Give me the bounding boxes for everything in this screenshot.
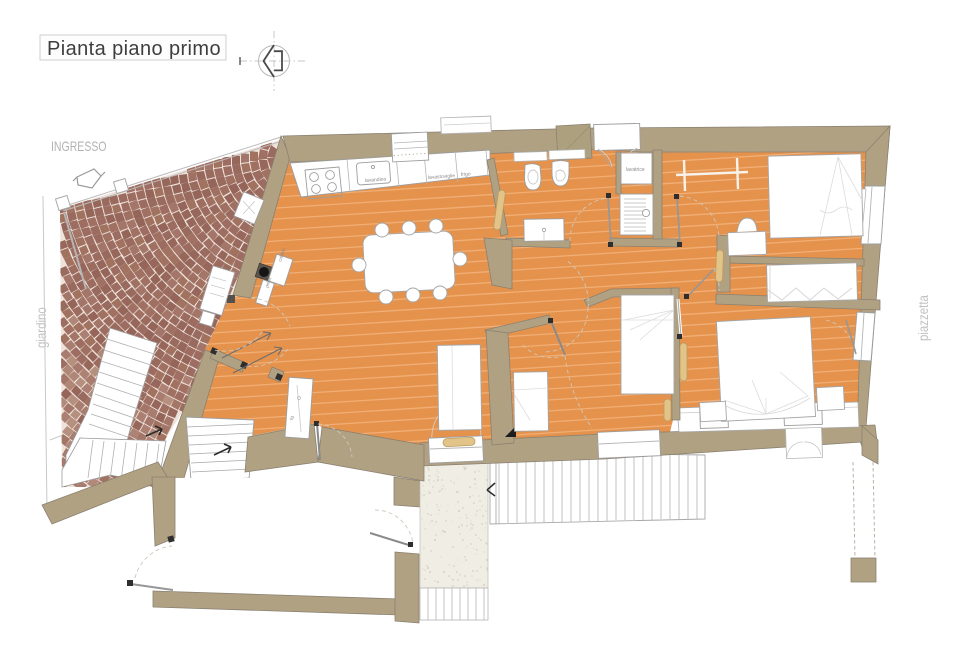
svg-text:giardino: giardino: [34, 307, 49, 348]
svg-text:INGRESSO: INGRESSO: [51, 139, 107, 155]
svg-text:frigo: frigo: [461, 171, 471, 178]
svg-text:lavatrice: lavatrice: [626, 167, 645, 173]
svg-text:piazzetta: piazzetta: [916, 295, 931, 341]
svg-text:Pianta piano primo: Pianta piano primo: [47, 38, 221, 60]
